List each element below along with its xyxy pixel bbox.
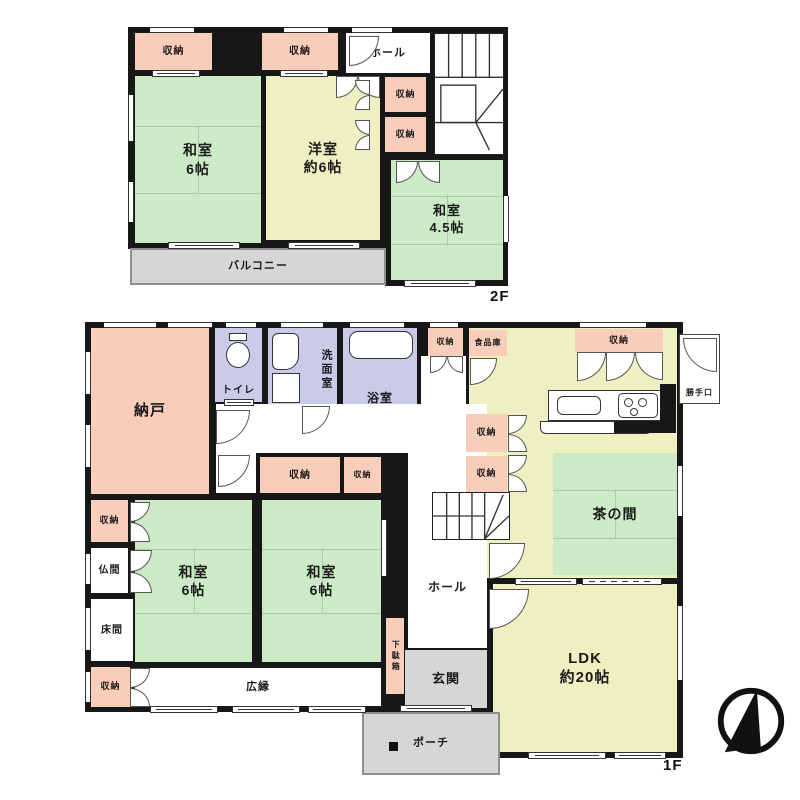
room-tea-room: 茶の間 (553, 453, 677, 575)
window (168, 322, 212, 328)
window (580, 322, 646, 328)
window (104, 322, 156, 328)
toilet-tank-icon (229, 333, 247, 341)
room-label: 仏間 (99, 564, 121, 577)
window (381, 520, 387, 576)
room-tatami-room-6: 和室6帖 (135, 500, 252, 662)
floor-plan-page: 収納収納ホール収納収納和室6帖洋室約6帖和室4.5帖バルコニー2F 納戸トイレ洗… (0, 0, 800, 800)
room-closet: 収納 (428, 328, 463, 356)
sliding-door-line (589, 581, 655, 582)
room-label: 収納 (476, 427, 496, 439)
room-label: 収納 (354, 470, 372, 480)
room-tatami-room-6: 和室6帖 (262, 500, 381, 662)
room-closet: 収納 (466, 414, 507, 452)
room-pantry: 食品庫 (469, 330, 507, 356)
sliding-door (614, 752, 666, 759)
window (85, 425, 91, 467)
room-closet: 収納 (91, 667, 130, 707)
sliding-door (232, 706, 300, 713)
tatami-line (194, 549, 195, 614)
room-closet: 収納 (91, 500, 128, 542)
room-porch: ポーチ (362, 712, 500, 775)
compass-north-icon (712, 682, 790, 760)
room-label: 広縁 (246, 680, 270, 694)
sliding-door-line (521, 581, 571, 582)
room-size-label: 約20帖 (560, 668, 611, 688)
room-closet: 収納 (260, 457, 340, 493)
room-alcove: 床間 (91, 599, 133, 661)
sliding-door (308, 706, 366, 713)
window (677, 606, 683, 680)
room-shoe-cabinet: 下駄箱 (386, 618, 404, 694)
room-label: ホール (428, 580, 467, 594)
window (430, 322, 458, 328)
washing-machine-icon (272, 333, 299, 370)
wall-stub (614, 421, 676, 433)
room-label: 収納 (100, 681, 120, 693)
room-label-holder: ホール (408, 580, 487, 596)
room-closet: 収納 (466, 456, 507, 492)
stairs (432, 492, 510, 540)
kitchen-sink-icon (557, 396, 601, 415)
window (226, 322, 256, 328)
tatami-line (553, 538, 677, 539)
sliding-door (400, 705, 472, 712)
window (677, 466, 683, 516)
floor-label-1f: 1F (663, 757, 683, 774)
room-label: 玄関 (432, 671, 460, 688)
window (85, 608, 91, 650)
window (85, 352, 91, 394)
sliding-door (150, 706, 218, 713)
stove-icon (618, 393, 658, 418)
room-entrance: 玄関 (405, 650, 487, 708)
room-label: 洗面室 (319, 349, 333, 391)
room-label: 床間 (101, 624, 123, 637)
sliding-door-line (313, 709, 360, 710)
window (85, 554, 91, 584)
room-label: 収納 (99, 515, 119, 527)
sliding-door-line (156, 709, 211, 710)
sliding-door-line (535, 755, 599, 756)
room-veranda: 広縁 (135, 668, 381, 706)
room-label: ポーチ (413, 736, 449, 750)
sliding-door-line (238, 709, 293, 710)
bathtub-icon (349, 331, 413, 359)
floor-plan-1f: 納戸トイレ洗面室浴室収納食品庫収納勝手口ホール収納収納茶の間収納収納収納仏間床間… (0, 0, 800, 800)
sliding-door-line (227, 402, 251, 403)
tatami-line (135, 613, 252, 614)
room-kitchen-closet: 収納 (575, 329, 663, 352)
sliding-door (582, 578, 662, 585)
window (281, 322, 323, 328)
room-storage-room: 納戸 (91, 328, 209, 494)
window (85, 672, 91, 702)
toilet-bowl-icon (226, 342, 250, 368)
porch-marker (389, 742, 398, 751)
burner-icon (624, 398, 633, 407)
window (350, 322, 404, 328)
room-label: LDK (568, 649, 602, 669)
tatami-line (262, 613, 381, 614)
room-closet: 収納 (344, 457, 381, 493)
room-label: 下駄箱 (390, 640, 400, 673)
sliding-door (515, 578, 577, 585)
burner-icon (630, 408, 638, 416)
sliding-door-line (619, 755, 661, 756)
room-label: 収納 (289, 469, 311, 482)
room-label: 収納 (437, 337, 455, 347)
tatami-line (615, 490, 616, 539)
sink-cabinet-icon (272, 373, 300, 403)
room-label: 収納 (476, 468, 496, 480)
room-label: 食品庫 (475, 338, 502, 348)
sliding-door (224, 399, 254, 406)
room-label: 納戸 (134, 401, 166, 421)
burner-icon (638, 398, 647, 407)
room-label: 勝手口 (686, 388, 713, 398)
sliding-door (528, 752, 606, 759)
room-label: トイレ (222, 384, 255, 397)
sliding-door-line (407, 708, 466, 709)
room-label: 収納 (609, 335, 629, 347)
room-altar-room: 仏間 (91, 548, 128, 593)
tatami-line (322, 549, 323, 614)
toilet-icon (225, 333, 251, 369)
